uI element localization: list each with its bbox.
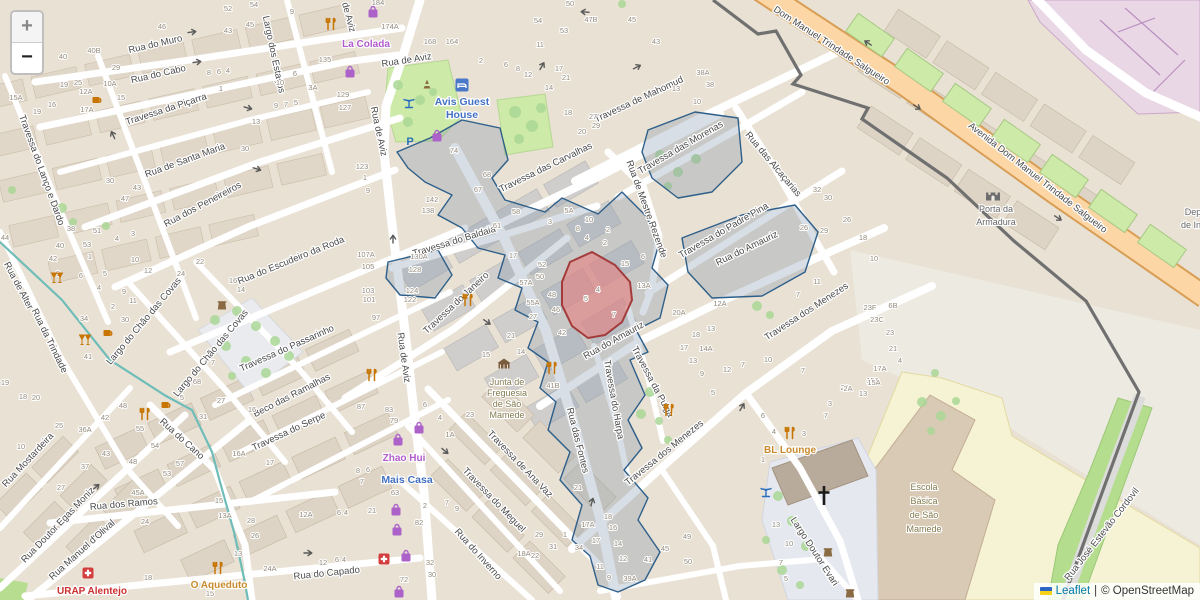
- house-number: 15: [621, 259, 629, 268]
- house-number: 1: [563, 530, 567, 539]
- attribution-bar: Leaflet | © OpenStreetMap: [1034, 583, 1200, 600]
- house-number: 1: [761, 455, 765, 464]
- house-number: 52: [538, 260, 546, 269]
- house-number: 43: [652, 37, 660, 46]
- house-number: 11: [536, 40, 544, 49]
- house-number: 10A: [103, 79, 116, 88]
- house-number: 12A: [79, 87, 92, 96]
- house-number: 13: [234, 549, 242, 558]
- house-number: 12A: [299, 510, 312, 519]
- svg-text:P: P: [406, 136, 413, 148]
- house-number: 107A: [357, 250, 375, 259]
- house-number: 41B: [546, 381, 559, 390]
- house-number: 105: [362, 262, 375, 271]
- house-number: 40: [56, 241, 64, 250]
- house-number: 45: [628, 15, 636, 24]
- house-number: 63: [391, 488, 399, 497]
- house-number: 53: [163, 469, 171, 478]
- poi-label: Armadura: [976, 217, 1016, 227]
- poi-label: House: [446, 109, 478, 121]
- house-number: 21: [574, 483, 582, 492]
- poi-label: de São: [493, 399, 522, 409]
- house-number: 21: [562, 73, 570, 82]
- house-number: 11: [596, 562, 604, 571]
- house-number: 30: [106, 176, 114, 185]
- house-number: 142: [426, 195, 439, 204]
- house-number: 6: [337, 508, 341, 517]
- attribution-separator: |: [1094, 585, 1097, 597]
- house-number: 20A: [672, 308, 685, 317]
- house-number: 7: [360, 477, 364, 486]
- house-number: 129: [337, 90, 350, 99]
- house-number: 5: [103, 269, 107, 278]
- house-number: 13: [772, 520, 780, 529]
- house-number: 29: [592, 121, 600, 130]
- house-number: 2: [423, 501, 427, 510]
- house-number: 7: [741, 360, 745, 369]
- house-number: 47B: [584, 15, 597, 24]
- house-number: 13A: [218, 511, 231, 520]
- house-number: 2: [603, 238, 607, 247]
- house-number: 68: [193, 377, 201, 386]
- house-number: 39A: [623, 574, 636, 583]
- ukraine-flag-icon: [1040, 587, 1052, 595]
- house-number: 47: [121, 194, 129, 203]
- house-number: 14: [237, 285, 245, 294]
- house-number: 26: [800, 223, 808, 232]
- house-number: 17: [680, 343, 688, 352]
- house-number: 13: [859, 389, 867, 398]
- poi-label: Mamede: [906, 524, 941, 534]
- house-number: 34: [80, 314, 88, 323]
- house-number: 10: [585, 215, 593, 224]
- house-number: 3A: [308, 83, 317, 92]
- poi-label: O Aqueduto: [191, 580, 248, 591]
- house-number: 27: [589, 112, 597, 121]
- house-number: 53: [83, 240, 91, 249]
- house-number: 19: [33, 107, 41, 116]
- house-number: 27: [217, 396, 225, 405]
- house-number: 31: [199, 412, 207, 421]
- house-number: 17A: [80, 105, 93, 114]
- house-number: 27: [529, 312, 537, 321]
- house-number: 43: [133, 183, 141, 192]
- house-number: 3: [131, 229, 135, 238]
- house-number: 38A: [696, 68, 709, 77]
- house-number: 2A: [843, 384, 852, 393]
- house-number: 10: [131, 255, 139, 264]
- house-number: 4: [898, 356, 902, 365]
- house-number: 12: [144, 266, 152, 275]
- house-number: 2: [111, 302, 115, 311]
- house-number: 7: [779, 558, 783, 567]
- house-number: 57A: [519, 278, 532, 287]
- house-number: 11: [129, 296, 137, 305]
- house-number: 17: [592, 536, 600, 545]
- house-number: 1A: [445, 430, 454, 439]
- house-number: 9: [122, 287, 126, 296]
- house-number: 18: [19, 392, 27, 401]
- house-number: 7: [211, 358, 215, 367]
- house-number: 51: [93, 226, 101, 235]
- house-number: 23: [466, 410, 474, 419]
- house-number: 30: [121, 315, 129, 324]
- poi-label: Junta de: [490, 377, 525, 387]
- house-number: 15: [117, 93, 125, 102]
- house-number: 164: [446, 37, 459, 46]
- parking-icon[interactable]: P: [406, 136, 413, 148]
- house-number: 10: [785, 539, 793, 548]
- bin-icon[interactable]: [218, 302, 226, 310]
- house-number: 3: [548, 217, 552, 226]
- house-number: 6: [217, 67, 221, 76]
- house-number: 30: [824, 193, 832, 202]
- house-number: 4: [438, 413, 442, 422]
- house-number: 18: [604, 512, 612, 521]
- house-number: 15: [215, 496, 223, 505]
- house-number: 5: [180, 393, 184, 402]
- house-number: 14A: [699, 344, 712, 353]
- house-number: 3: [802, 429, 806, 438]
- house-number: 54: [534, 16, 542, 25]
- house-number: 57: [176, 459, 184, 468]
- house-number: 5: [584, 294, 588, 303]
- house-number: 30: [428, 570, 436, 579]
- house-number: 55A: [526, 298, 539, 307]
- house-number: 82: [415, 518, 423, 527]
- house-number: 135: [319, 55, 332, 64]
- poi-label: URAP Alentejo: [57, 586, 127, 597]
- house-number: 38: [67, 224, 75, 233]
- poi-label: Escola: [910, 482, 937, 492]
- house-number: 12A: [713, 299, 726, 308]
- house-number: 6: [293, 69, 297, 78]
- house-number: 16: [248, 405, 256, 414]
- house-number: 103: [362, 286, 375, 295]
- house-number: 9: [700, 369, 704, 378]
- house-number: 9: [455, 504, 459, 513]
- house-number: 14: [517, 347, 525, 356]
- poi-label: Dep: [1185, 207, 1200, 217]
- house-number: 2: [479, 56, 483, 65]
- house-number: 10: [693, 97, 701, 106]
- house-number: 28: [247, 516, 255, 525]
- house-number: 6: [366, 465, 370, 474]
- house-number: 12: [723, 365, 731, 374]
- house-number: 48: [548, 290, 556, 299]
- house-number: 7: [612, 310, 616, 319]
- house-number: 8: [356, 466, 360, 475]
- house-number: 17: [266, 458, 274, 467]
- house-number: 17: [509, 251, 517, 260]
- house-number: 17A: [873, 364, 886, 373]
- house-number: 6B: [888, 301, 897, 310]
- poi-label: de In: [1181, 220, 1200, 230]
- house-number: 128: [409, 265, 422, 274]
- house-number: 10: [764, 355, 772, 364]
- house-number: 4: [226, 66, 230, 75]
- house-number: 16A: [232, 449, 245, 458]
- house-number: 67: [474, 185, 482, 194]
- poi-label: Avis Guest: [435, 96, 490, 108]
- house-number: 41: [84, 352, 92, 361]
- house-number: 2: [606, 225, 610, 234]
- poi-label: Freguesia: [487, 388, 527, 398]
- house-number: 24A: [263, 564, 276, 573]
- house-number: 130A: [410, 252, 428, 261]
- house-number: 1: [219, 84, 223, 93]
- house-number: 18A: [517, 549, 530, 558]
- house-number: 19: [1, 378, 9, 387]
- house-number: 23: [886, 328, 894, 337]
- house-number: 10: [17, 442, 25, 451]
- house-number: 23F: [864, 303, 877, 312]
- house-number: 12: [319, 558, 327, 567]
- house-number: 9: [366, 186, 370, 195]
- poi-label: Porta da: [979, 204, 1013, 214]
- house-number: 50: [684, 557, 692, 566]
- house-number: 15A: [867, 378, 880, 387]
- house-number: 124: [406, 286, 419, 295]
- zoom-in-button[interactable]: +: [12, 12, 42, 43]
- house-number: 7: [445, 498, 449, 507]
- house-number: 9: [607, 573, 611, 582]
- castle-icon[interactable]: [986, 193, 1000, 201]
- house-number: 83: [385, 405, 393, 414]
- house-number: 45A: [131, 488, 144, 497]
- map-canvas[interactable]: Rua do MuroRua do CaboTravessa da Piçarr…: [0, 0, 1200, 600]
- house-number: 24: [177, 269, 185, 278]
- house-number: 97: [372, 313, 380, 322]
- poi-label: Mamede: [489, 410, 524, 420]
- house-number: 49: [683, 532, 691, 541]
- house-number: 123: [356, 162, 369, 171]
- house-number: 19: [60, 80, 68, 89]
- house-number: 12: [619, 554, 627, 563]
- house-number: 53: [560, 26, 568, 35]
- house-number: 72: [400, 575, 408, 584]
- house-number: 44: [1, 233, 9, 242]
- house-number: 4: [772, 427, 776, 436]
- house-number: 22: [531, 551, 539, 560]
- house-number: 18: [144, 573, 152, 582]
- house-number: 6: [761, 411, 765, 420]
- house-number: 32: [813, 185, 821, 194]
- house-number: 6: [641, 252, 645, 261]
- house-number: 46: [552, 305, 560, 314]
- house-number: 45: [661, 544, 669, 553]
- hotel-icon[interactable]: [456, 79, 469, 92]
- house-number: 50: [536, 272, 544, 281]
- house-number: 17A: [581, 520, 594, 529]
- house-number: 10: [276, 78, 284, 87]
- house-number: 13A: [637, 281, 650, 290]
- house-number: 29: [535, 530, 543, 539]
- house-number: 6: [79, 271, 83, 280]
- poi-label: La Colada: [342, 39, 390, 50]
- house-number: 25: [55, 421, 63, 430]
- house-number: 168: [424, 37, 437, 46]
- house-number: 11: [813, 277, 821, 286]
- house-number: 55: [136, 424, 144, 433]
- house-number: 21: [507, 331, 515, 340]
- zoom-control: + −: [10, 10, 44, 75]
- house-number: 18: [859, 233, 867, 242]
- house-number: 68: [483, 170, 491, 179]
- house-number: 7: [284, 100, 288, 109]
- house-number: 40: [59, 52, 67, 61]
- house-number: 29: [820, 226, 828, 235]
- house-number: 12: [524, 70, 532, 79]
- house-number: 36A: [78, 425, 91, 434]
- house-number: 58: [512, 207, 520, 216]
- house-number: 42: [101, 413, 109, 422]
- house-number: 24: [141, 517, 149, 526]
- house-number: 13: [252, 117, 260, 126]
- house-number: 37: [81, 462, 89, 471]
- house-number: 8: [576, 224, 580, 233]
- house-number: 14: [545, 83, 553, 92]
- house-number: 26: [251, 531, 259, 540]
- poi-label: de São: [910, 510, 939, 520]
- house-number: 34: [575, 543, 583, 552]
- house-number: 87: [357, 402, 365, 411]
- house-number: 4: [97, 283, 101, 292]
- leaflet-link[interactable]: Leaflet: [1056, 585, 1091, 597]
- zoom-out-button[interactable]: −: [12, 43, 42, 73]
- house-number: 15A: [9, 93, 22, 102]
- poi-label: BL Lounge: [764, 445, 816, 456]
- house-number: 20: [32, 393, 40, 402]
- map-container[interactable]: Rua do MuroRua do CaboTravessa da Piçarr…: [0, 0, 1200, 600]
- house-number: 5: [784, 574, 788, 583]
- house-number: 1: [363, 173, 367, 182]
- house-number: 17: [555, 64, 563, 73]
- house-number: 9: [274, 101, 278, 110]
- house-number: 21: [368, 506, 376, 515]
- house-number: 127: [339, 103, 352, 112]
- house-number: 42: [558, 328, 566, 337]
- house-number: 29: [112, 63, 120, 72]
- house-number: 30: [241, 144, 249, 153]
- house-number: 61: [493, 221, 501, 230]
- poi-label: Básica: [910, 496, 937, 506]
- house-number: 7: [801, 366, 805, 375]
- house-number: 22: [196, 257, 204, 266]
- house-number: 174A: [381, 22, 399, 31]
- poi-label: Mais Casa: [381, 474, 433, 486]
- garden-carvalhas: [497, 94, 553, 155]
- house-number: 4: [342, 555, 346, 564]
- bin-icon[interactable]: [824, 549, 832, 557]
- house-number: 3: [828, 399, 832, 408]
- house-number: 7: [824, 411, 828, 420]
- house-number: 23C: [870, 315, 884, 324]
- house-number: 40B: [87, 46, 100, 55]
- house-number: 6: [335, 555, 339, 564]
- house-number: 10: [870, 254, 878, 263]
- house-number: 25: [74, 78, 82, 87]
- house-number: 31: [549, 542, 557, 551]
- house-number: 50: [566, 0, 574, 8]
- house-number: 20: [578, 127, 586, 136]
- house-number: 15: [482, 350, 490, 359]
- house-number: 46: [158, 22, 166, 31]
- house-number: 13: [689, 356, 697, 365]
- house-number: 5A: [564, 206, 573, 215]
- house-number: 122: [404, 295, 417, 304]
- poi-label: Zhao Hui: [383, 453, 426, 464]
- house-number: 43: [102, 449, 110, 458]
- osm-link[interactable]: © OpenStreetMap: [1101, 585, 1194, 597]
- house-number: 101: [363, 295, 376, 304]
- house-number: 6: [504, 60, 508, 69]
- house-number: 18: [692, 330, 700, 339]
- bin-icon[interactable]: [846, 590, 854, 598]
- firstaid-icon[interactable]: [83, 568, 94, 579]
- house-number: 52: [224, 4, 232, 13]
- house-number: 45: [246, 20, 254, 29]
- house-number: 4: [585, 233, 589, 242]
- house-number: 5: [711, 388, 715, 397]
- house-number: 32: [426, 558, 434, 567]
- house-number: 26: [843, 215, 851, 224]
- house-number: 5: [294, 98, 298, 107]
- house-number: 4: [115, 234, 119, 243]
- house-number: 4: [596, 285, 600, 294]
- house-number: 13: [707, 324, 715, 333]
- house-number: 13: [672, 84, 680, 93]
- house-number: 9: [290, 7, 294, 16]
- house-number: 27: [57, 483, 65, 492]
- house-number: 74: [450, 146, 458, 155]
- house-number: 16: [229, 276, 237, 285]
- house-number: 18: [564, 108, 572, 117]
- house-number: 21: [889, 344, 897, 353]
- house-number: 54: [250, 0, 258, 9]
- house-number: 1: [88, 252, 92, 261]
- house-number: 7: [796, 290, 800, 299]
- house-number: 138: [422, 206, 435, 215]
- house-number: 38: [706, 80, 714, 89]
- house-number: 48: [119, 401, 127, 410]
- house-number: 16: [48, 100, 56, 109]
- house-number: 42: [49, 254, 57, 263]
- house-number: 14: [614, 539, 622, 548]
- house-number: 48: [129, 457, 137, 466]
- house-number: 54: [151, 441, 159, 450]
- house-number: 8: [207, 68, 211, 77]
- house-number: 43: [224, 26, 232, 35]
- firstaid-icon[interactable]: [379, 554, 390, 565]
- house-number: 16: [609, 523, 617, 532]
- house-number: 79: [390, 416, 398, 425]
- house-number: 8: [516, 64, 520, 73]
- house-number: 41: [644, 555, 652, 564]
- house-number: 4: [344, 508, 348, 517]
- house-number: 6: [423, 400, 427, 409]
